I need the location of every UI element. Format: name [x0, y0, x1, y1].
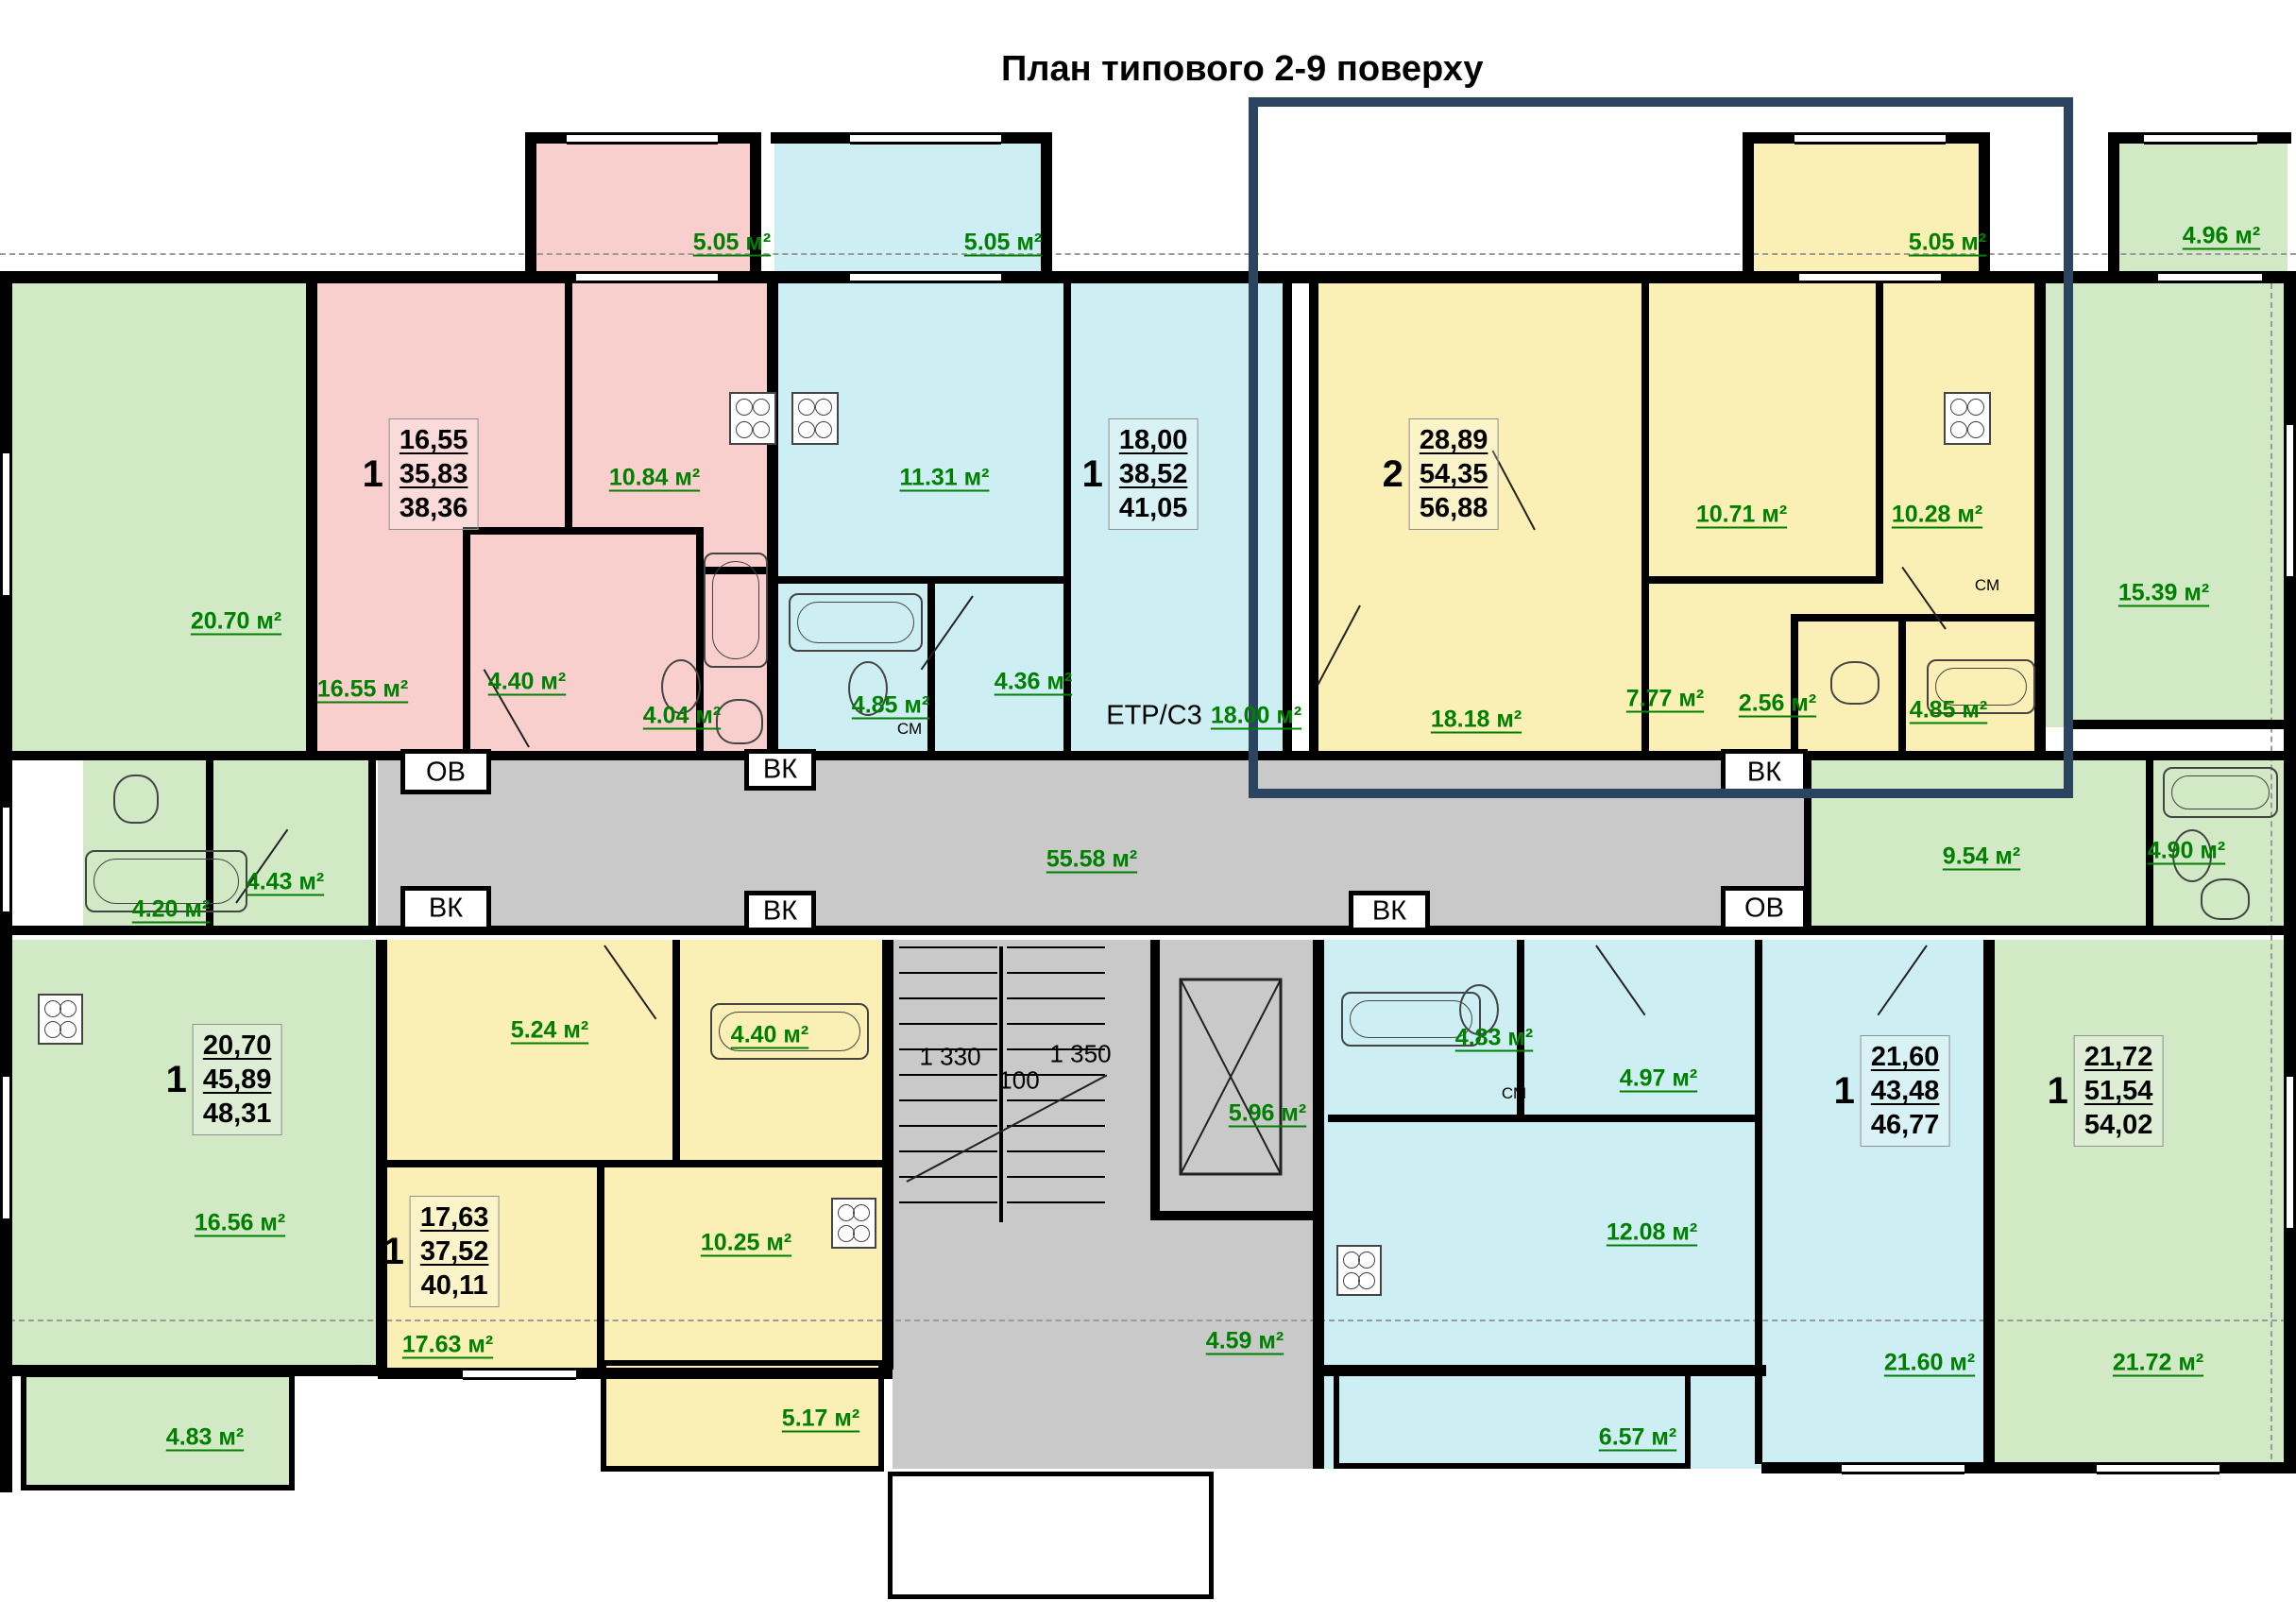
area-label-pink-kitchen: 10.84 м² — [609, 465, 700, 492]
area-label-yellow-room2: 10.71 м² — [1696, 502, 1787, 529]
floor-plan: План типового 2-9 поверху 1 16,5535,8338… — [0, 0, 2296, 1618]
window-icon — [2284, 425, 2296, 576]
stove-icon — [729, 392, 776, 445]
window-icon — [0, 1077, 12, 1218]
window-icon — [567, 132, 718, 145]
elevator-icon — [1179, 978, 1283, 1176]
area-label-blue-bath: 4.85 м² — [852, 692, 929, 720]
area-label-yellow-bath: 4.85 м² — [1910, 697, 1987, 724]
area-label-bl-balcony: 4.83 м² — [166, 1424, 244, 1452]
stove-icon — [831, 1198, 876, 1249]
dim-flight-left: 1 330 — [919, 1043, 980, 1072]
area-label-pink-bath: 4.04 м² — [643, 703, 721, 730]
window-icon — [576, 271, 718, 283]
entrance-porch — [888, 1472, 1214, 1599]
area-label-yellow-balcony: 5.05 м² — [1909, 230, 1986, 257]
area-label-blue-kitchen: 11.31 м² — [900, 465, 990, 492]
label-etr: ЕТР/С3 — [1106, 701, 1202, 732]
axis-line-right — [2270, 274, 2272, 1469]
room-count: 1 — [383, 1231, 404, 1273]
room-count: 2 — [1383, 453, 1403, 496]
area-label-bl-room: 16.56 м² — [195, 1210, 285, 1237]
label-vk: ВК — [1372, 896, 1406, 928]
area-label-blue-hall: 4.36 м² — [995, 669, 1072, 696]
window-icon — [463, 1368, 576, 1380]
area-label-yb-bath: 4.40 м² — [731, 1022, 808, 1049]
bathtub-icon — [704, 553, 768, 668]
room-count: 1 — [1082, 453, 1103, 496]
area-label-corridor: 55.58 м² — [1046, 846, 1137, 874]
room-count: 1 — [2048, 1070, 2068, 1113]
label-vk: ВК — [763, 755, 797, 786]
area-label-bb-hall: 4.97 м² — [1620, 1065, 1697, 1093]
apartment-summary-blue-top: 1 18,0038,5241,05 — [1082, 418, 1199, 530]
area-label-pink-hall: 4.40 м² — [488, 669, 566, 696]
apartment-summary-green-bl: 1 20,7045,8948,31 — [166, 1024, 282, 1135]
area-label-yellow-living: 18.18 м² — [1431, 707, 1522, 734]
bathtub-icon — [789, 593, 923, 652]
room-fill-green-top-left — [9, 283, 307, 751]
area-label-vestibule: 4.59 м² — [1206, 1328, 1284, 1355]
area-label-bb-bath: 4.83 м² — [1455, 1025, 1533, 1052]
label-sm: СМ — [1502, 1084, 1526, 1103]
page-title: План типового 2-9 поверху — [1001, 49, 1454, 90]
window-icon — [850, 271, 1001, 283]
area-label-bb-balcony: 6.57 м² — [1599, 1424, 1676, 1452]
label-vk: ВК — [1747, 758, 1781, 789]
area-label-green-tl-room: 20.70 м² — [191, 608, 281, 636]
area-label-blue-living: 18.00 м² — [1211, 703, 1301, 730]
apartment-summary-yellow-bottom: 1 17,6337,5240,11 — [383, 1196, 500, 1307]
room-fill-green-bottom-right — [1995, 940, 2286, 1462]
apartment-summary-yellow-top: 2 28,8954,3556,88 — [1383, 418, 1499, 530]
toilet-icon — [716, 699, 763, 744]
apartment-summary-blue-bottom: 1 21,6043,4846,77 — [1834, 1035, 1950, 1147]
area-label-mid-left-bath: 4.20 м² — [132, 896, 210, 924]
window-icon — [2097, 1462, 2219, 1474]
area-label-yb-balcony: 5.17 м² — [782, 1405, 859, 1433]
dim-flight-right: 1 350 — [1049, 1040, 1111, 1069]
area-label-yellow-wc: 2.56 м² — [1739, 690, 1816, 718]
area-label-yellow-kitchen: 10.28 м² — [1892, 502, 1982, 529]
stove-icon — [38, 994, 83, 1045]
area-label-pink-balcony: 5.05 м² — [693, 230, 771, 257]
bathtub-icon — [2163, 767, 2278, 818]
label-vk: ВК — [429, 894, 463, 925]
label-ov: ОВ — [1744, 894, 1784, 925]
area-label-elevator: 5.96 м² — [1229, 1100, 1306, 1128]
area-label-yellow-hall: 7.77 м² — [1626, 686, 1704, 713]
area-label-mid-left-hall: 4.43 м² — [247, 869, 324, 896]
area-label-yb-kitchen: 10.25 м² — [701, 1230, 791, 1257]
area-label-blue-balcony: 5.05 м² — [964, 230, 1042, 257]
window-icon — [0, 453, 12, 595]
toilet-icon — [113, 775, 159, 824]
stair-flight-left — [899, 946, 997, 1222]
stove-icon — [1336, 1245, 1382, 1296]
area-label-green-tr-room: 15.39 м² — [2118, 580, 2209, 607]
room-fill-blue-b-balcony — [1334, 1365, 1691, 1469]
room-fill-green-balcony — [2113, 137, 2287, 271]
area-label-mid-right-bath: 4.90 м² — [2148, 838, 2225, 865]
window-icon — [2158, 271, 2262, 283]
dim-gap: 100 — [998, 1066, 1039, 1096]
area-label-yb-living: 17.63 м² — [402, 1332, 493, 1359]
apartment-summary-green-br: 1 21,7251,5454,02 — [2048, 1035, 2164, 1147]
room-fill-green-top-right — [2046, 283, 2286, 727]
window-icon — [850, 132, 1001, 145]
axis-line-bottom — [0, 1320, 2296, 1321]
area-label-yb-bedroom: 5.24 м² — [511, 1017, 588, 1045]
label-sm: СМ — [1975, 576, 1999, 595]
window-icon — [0, 808, 12, 911]
window-icon — [1842, 1462, 1964, 1474]
label-ov: ОВ — [426, 758, 466, 789]
area-label-bb-kitchen: 12.08 м² — [1607, 1219, 1697, 1247]
window-icon — [2284, 1077, 2296, 1228]
area-label-mid-right-hall: 9.54 м² — [1943, 843, 2020, 871]
label-sm: СМ — [897, 720, 922, 739]
apartment-summary-pink: 1 16,5535,8338,36 — [363, 418, 479, 530]
room-fill-green-bl-balcony — [21, 1371, 295, 1490]
toilet-icon — [2201, 878, 2250, 920]
area-label-br-room: 21.72 м² — [2113, 1350, 2203, 1377]
room-count: 1 — [1834, 1070, 1855, 1113]
label-vk: ВК — [763, 896, 797, 928]
area-label-pink-living: 16.55 м² — [317, 676, 408, 704]
area-label-green-balcony: 4.96 м² — [2183, 223, 2260, 250]
room-count: 1 — [166, 1059, 187, 1101]
window-icon — [2144, 132, 2257, 145]
area-label-bb-living: 21.60 м² — [1884, 1350, 1975, 1377]
stove-icon — [791, 392, 839, 445]
room-count: 1 — [363, 453, 383, 496]
